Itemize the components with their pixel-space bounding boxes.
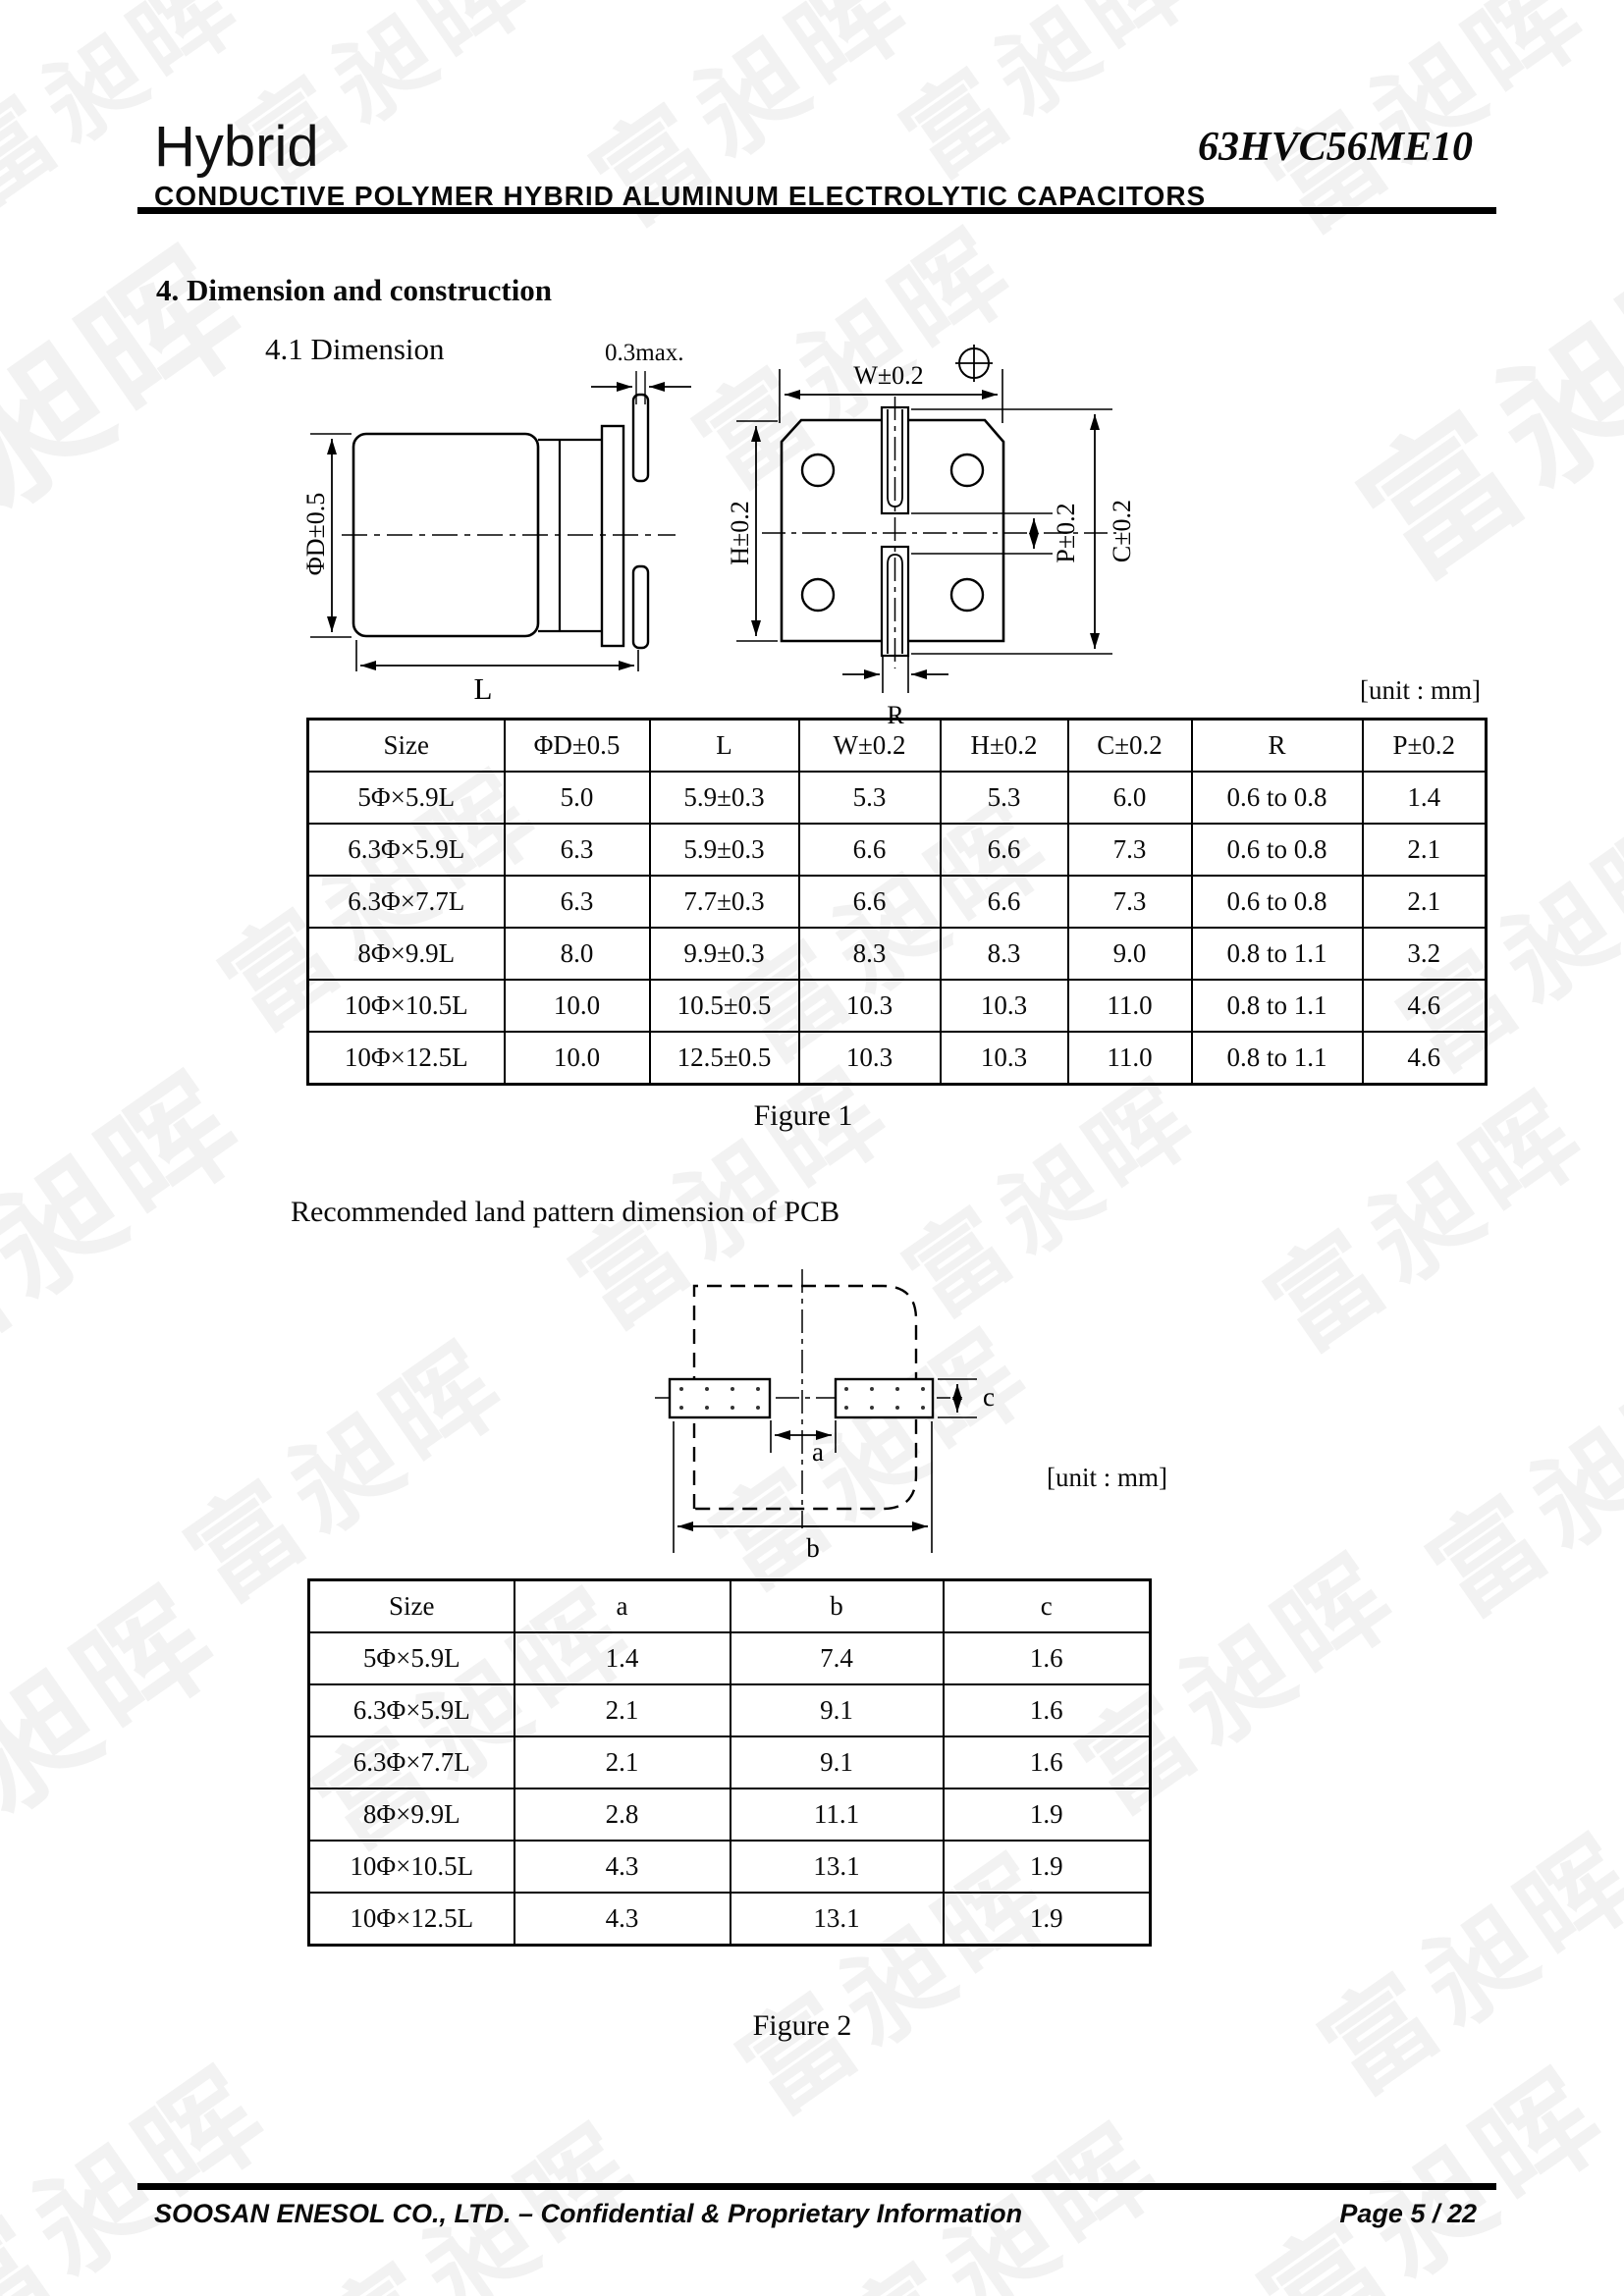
table-cell: 4.6	[1363, 1032, 1487, 1085]
column-header: W±0.2	[799, 720, 941, 773]
table-cell: 1.6	[944, 1736, 1151, 1789]
watermark-text: 富昶晖	[1315, 169, 1624, 617]
table-cell: 6.3Φ×7.7L	[309, 1736, 514, 1789]
column-header: b	[731, 1580, 944, 1633]
unit-note: [unit : mm]	[1353, 675, 1481, 706]
table-cell: 5.9±0.3	[650, 772, 799, 824]
land-pattern-geometry	[655, 1269, 977, 1553]
column-header: c	[944, 1580, 1151, 1633]
table-cell: 10.3	[941, 980, 1068, 1032]
table-cell: 11.0	[1068, 980, 1192, 1032]
table-cell: 10.0	[505, 980, 650, 1032]
table-cell: 7.7±0.3	[650, 876, 799, 928]
table-row: 10Φ×12.5L10.012.5±0.510.310.311.00.8 to …	[308, 1032, 1487, 1085]
watermark-text: 富昶晖	[1393, 1310, 1624, 1645]
column-header: L	[650, 720, 799, 773]
table-cell: 4.3	[514, 1893, 731, 1946]
table-row: 10Φ×12.5L4.313.11.9	[309, 1893, 1151, 1946]
watermark-text: 富昶晖	[0, 188, 286, 637]
table-header-row: SizeΦD±0.5LW±0.2H±0.2C±0.2RP±0.2	[308, 720, 1487, 773]
polarity-mark-icon	[955, 345, 993, 382]
footer-rule	[137, 2183, 1496, 2190]
table-cell: 5.3	[799, 772, 941, 824]
column-header: Size	[309, 1580, 514, 1633]
table-cell: 9.0	[1068, 928, 1192, 980]
gap-dimension-label: 0.3max.	[605, 340, 684, 367]
table-cell: 6.6	[941, 824, 1068, 876]
table-cell: 6.3Φ×5.9L	[308, 824, 505, 876]
height-dimension-label: H±0.2	[726, 501, 754, 565]
table-cell: 10Φ×10.5L	[308, 980, 505, 1032]
pitch-dimension-label: P±0.2	[1052, 503, 1080, 562]
column-header: C±0.2	[1068, 720, 1192, 773]
figure1-caption: Figure 1	[656, 1099, 950, 1133]
side-view-geometry	[310, 371, 691, 671]
pad-gap-label: a	[812, 1437, 824, 1467]
table-cell: 8.3	[941, 928, 1068, 980]
table-cell: 2.1	[514, 1684, 731, 1736]
table-cell: 0.6 to 0.8	[1192, 772, 1363, 824]
table-cell: 6.3Φ×7.7L	[308, 876, 505, 928]
watermark-text: 富昶晖	[557, 0, 942, 253]
table-cell: 6.0	[1068, 772, 1192, 824]
column-header: R	[1192, 720, 1363, 773]
table-cell: 1.4	[1363, 772, 1487, 824]
column-header: H±0.2	[941, 720, 1068, 773]
table-cell: 13.1	[731, 1893, 944, 1946]
table-cell: 3.2	[1363, 928, 1487, 980]
table-cell: 0.8 to 1.1	[1192, 928, 1363, 980]
dimension-table: SizeΦD±0.5LW±0.2H±0.2C±0.2RP±0.25Φ×5.9L5…	[306, 718, 1488, 1086]
capacitor-side-view-drawing: ΦD±0.5 L	[295, 334, 717, 707]
table-cell: 6.3	[505, 824, 650, 876]
table-cell: 1.6	[944, 1632, 1151, 1684]
footer-page-number: Page 5 / 22	[1339, 2199, 1477, 2229]
table-row: 6.3Φ×7.7L6.37.7±0.36.66.67.30.6 to 0.82.…	[308, 876, 1487, 928]
table-cell: 5Φ×5.9L	[309, 1632, 514, 1684]
column-header: P±0.2	[1363, 720, 1487, 773]
table-cell: 1.4	[514, 1632, 731, 1684]
table-cell: 2.8	[514, 1789, 731, 1841]
table-row: 6.3Φ×7.7L2.19.11.6	[309, 1736, 1151, 1789]
table-cell: 8.0	[505, 928, 650, 980]
table-cell: 9.1	[731, 1684, 944, 1736]
table-cell: 0.6 to 0.8	[1192, 824, 1363, 876]
table-cell: 10Φ×12.5L	[309, 1893, 514, 1946]
table-cell: 11.1	[731, 1789, 944, 1841]
section-title: 4. Dimension and construction	[156, 273, 552, 308]
table-cell: 6.3	[505, 876, 650, 928]
table-cell: 6.6	[941, 876, 1068, 928]
watermark-text: 富昶晖	[0, 2017, 301, 2296]
table-cell: 2.1	[1363, 824, 1487, 876]
c-dimension-label: C±0.2	[1108, 500, 1136, 562]
table-cell: 4.6	[1363, 980, 1487, 1032]
table-cell: 10.0	[505, 1032, 650, 1085]
datasheet-page: 富昶晖富昶晖富昶晖富昶晖富昶晖富昶晖富昶晖富昶晖富昶晖富昶晖富昶晖富昶晖富昶晖富…	[0, 0, 1624, 2296]
table-cell: 10.5±0.5	[650, 980, 799, 1032]
product-family-title: Hybrid	[154, 114, 319, 180]
land-pattern-drawing: c a b	[619, 1256, 1208, 1571]
table-cell: 1.6	[944, 1684, 1151, 1736]
table-cell: 0.8 to 1.1	[1192, 1032, 1363, 1085]
length-dimension-label: L	[474, 671, 493, 706]
pad-span-label: b	[806, 1533, 820, 1563]
table-cell: 1.9	[944, 1789, 1151, 1841]
table-row: 6.3Φ×5.9L2.19.11.6	[309, 1684, 1151, 1736]
table-row: 6.3Φ×5.9L6.35.9±0.36.66.67.30.6 to 0.82.…	[308, 824, 1487, 876]
capacitor-bottom-view-drawing: W±0.2 H±0.2 P±0.2 C±0.2 R	[717, 334, 1188, 746]
table-cell: 1.9	[944, 1893, 1151, 1946]
table-cell: 10Φ×10.5L	[309, 1841, 514, 1893]
part-number: 63HVC56ME10	[1198, 124, 1473, 171]
table-row: 5Φ×5.9L5.05.9±0.35.35.36.00.6 to 0.81.4	[308, 772, 1487, 824]
header-rule	[137, 207, 1496, 214]
table-row: 10Φ×10.5L4.313.11.9	[309, 1841, 1151, 1893]
table-cell: 6.3Φ×5.9L	[309, 1684, 514, 1736]
pad-height-label: c	[983, 1382, 995, 1412]
table-cell: 10.3	[799, 980, 941, 1032]
table-cell: 7.3	[1068, 824, 1192, 876]
table-cell: 0.8 to 1.1	[1192, 980, 1363, 1032]
table-cell: 12.5±0.5	[650, 1032, 799, 1085]
table-cell: 11.0	[1068, 1032, 1192, 1085]
table-cell: 6.6	[799, 876, 941, 928]
table-row: 8Φ×9.9L8.09.9±0.38.38.39.00.8 to 1.13.2	[308, 928, 1487, 980]
watermark-text: 富昶晖	[0, 1020, 278, 1411]
diameter-dimension-label: ΦD±0.5	[301, 493, 330, 576]
table-cell: 8.3	[799, 928, 941, 980]
column-header: a	[514, 1580, 731, 1633]
table-cell: 8Φ×9.9L	[309, 1789, 514, 1841]
table-cell: 10.3	[941, 1032, 1068, 1085]
table-cell: 7.3	[1068, 876, 1192, 928]
table-cell: 5.0	[505, 772, 650, 824]
table-cell: 1.9	[944, 1841, 1151, 1893]
footer-company: SOOSAN ENESOL CO., LTD. – Confidential &…	[154, 2199, 1022, 2229]
land-pattern-table: Sizeabc5Φ×5.9L1.47.41.66.3Φ×5.9L2.19.11.…	[307, 1578, 1152, 1947]
column-header: ΦD±0.5	[505, 720, 650, 773]
table-row: 10Φ×10.5L10.010.5±0.510.310.311.00.8 to …	[308, 980, 1487, 1032]
watermark-text: 富昶晖	[1231, 1045, 1616, 1380]
width-dimension-label: W±0.2	[853, 361, 923, 390]
figure2-caption: Figure 2	[655, 2009, 949, 2043]
table-cell: 13.1	[731, 1841, 944, 1893]
table-cell: 0.6 to 0.8	[1192, 876, 1363, 928]
table-cell: 9.1	[731, 1736, 944, 1789]
table-row: 8Φ×9.9L2.811.11.9	[309, 1789, 1151, 1841]
table-cell: 8Φ×9.9L	[308, 928, 505, 980]
table-cell: 4.3	[514, 1841, 731, 1893]
column-header: Size	[308, 720, 505, 773]
table-cell: 10.3	[799, 1032, 941, 1085]
land-pattern-title: Recommended land pattern dimension of PC…	[291, 1196, 839, 1229]
table-cell: 7.4	[731, 1632, 944, 1684]
table-cell: 5.3	[941, 772, 1068, 824]
table-cell: 5.9±0.3	[650, 824, 799, 876]
table-row: 5Φ×5.9L1.47.41.6	[309, 1632, 1151, 1684]
table-cell: 9.9±0.3	[650, 928, 799, 980]
unit-note: [unit : mm]	[1047, 1463, 1167, 1493]
table-cell: 6.6	[799, 824, 941, 876]
table-cell: 2.1	[514, 1736, 731, 1789]
table-cell: 2.1	[1363, 876, 1487, 928]
table-header-row: Sizeabc	[309, 1580, 1151, 1633]
table-cell: 5Φ×5.9L	[308, 772, 505, 824]
table-cell: 10Φ×12.5L	[308, 1032, 505, 1085]
